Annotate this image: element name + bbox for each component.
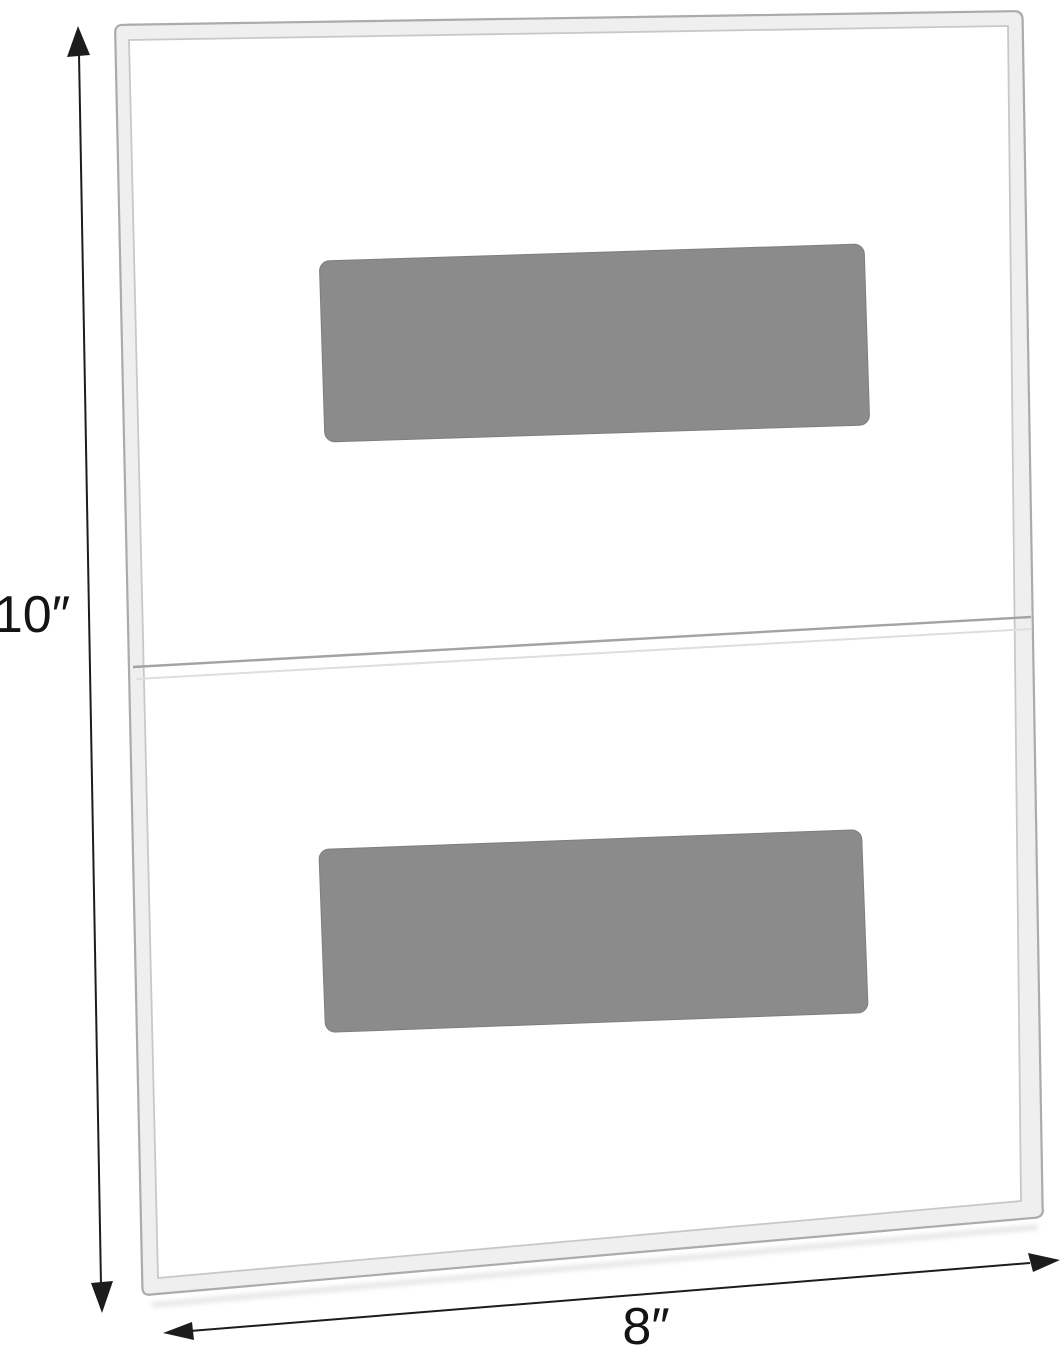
height-dimension: 10″ <box>0 26 113 1313</box>
width-label: 8″ <box>622 1298 669 1347</box>
sign-holder-diagram-canvas: 10″ 8″ <box>0 0 1064 1347</box>
height-label: 10″ <box>0 586 70 644</box>
height-dimension-line <box>79 54 101 1285</box>
sign-holder-frame <box>115 11 1043 1295</box>
arrow-left-icon <box>163 1322 194 1340</box>
adhesive-pad-bottom <box>319 830 868 1033</box>
product-dimension-diagram: 10″ 8″ <box>0 0 1064 1347</box>
arrow-down-icon <box>91 1281 113 1313</box>
arrow-up-icon <box>67 26 90 57</box>
adhesive-pad-top <box>319 244 869 442</box>
frame-inner-edge <box>129 26 1021 1278</box>
arrow-right-icon <box>1028 1253 1060 1272</box>
